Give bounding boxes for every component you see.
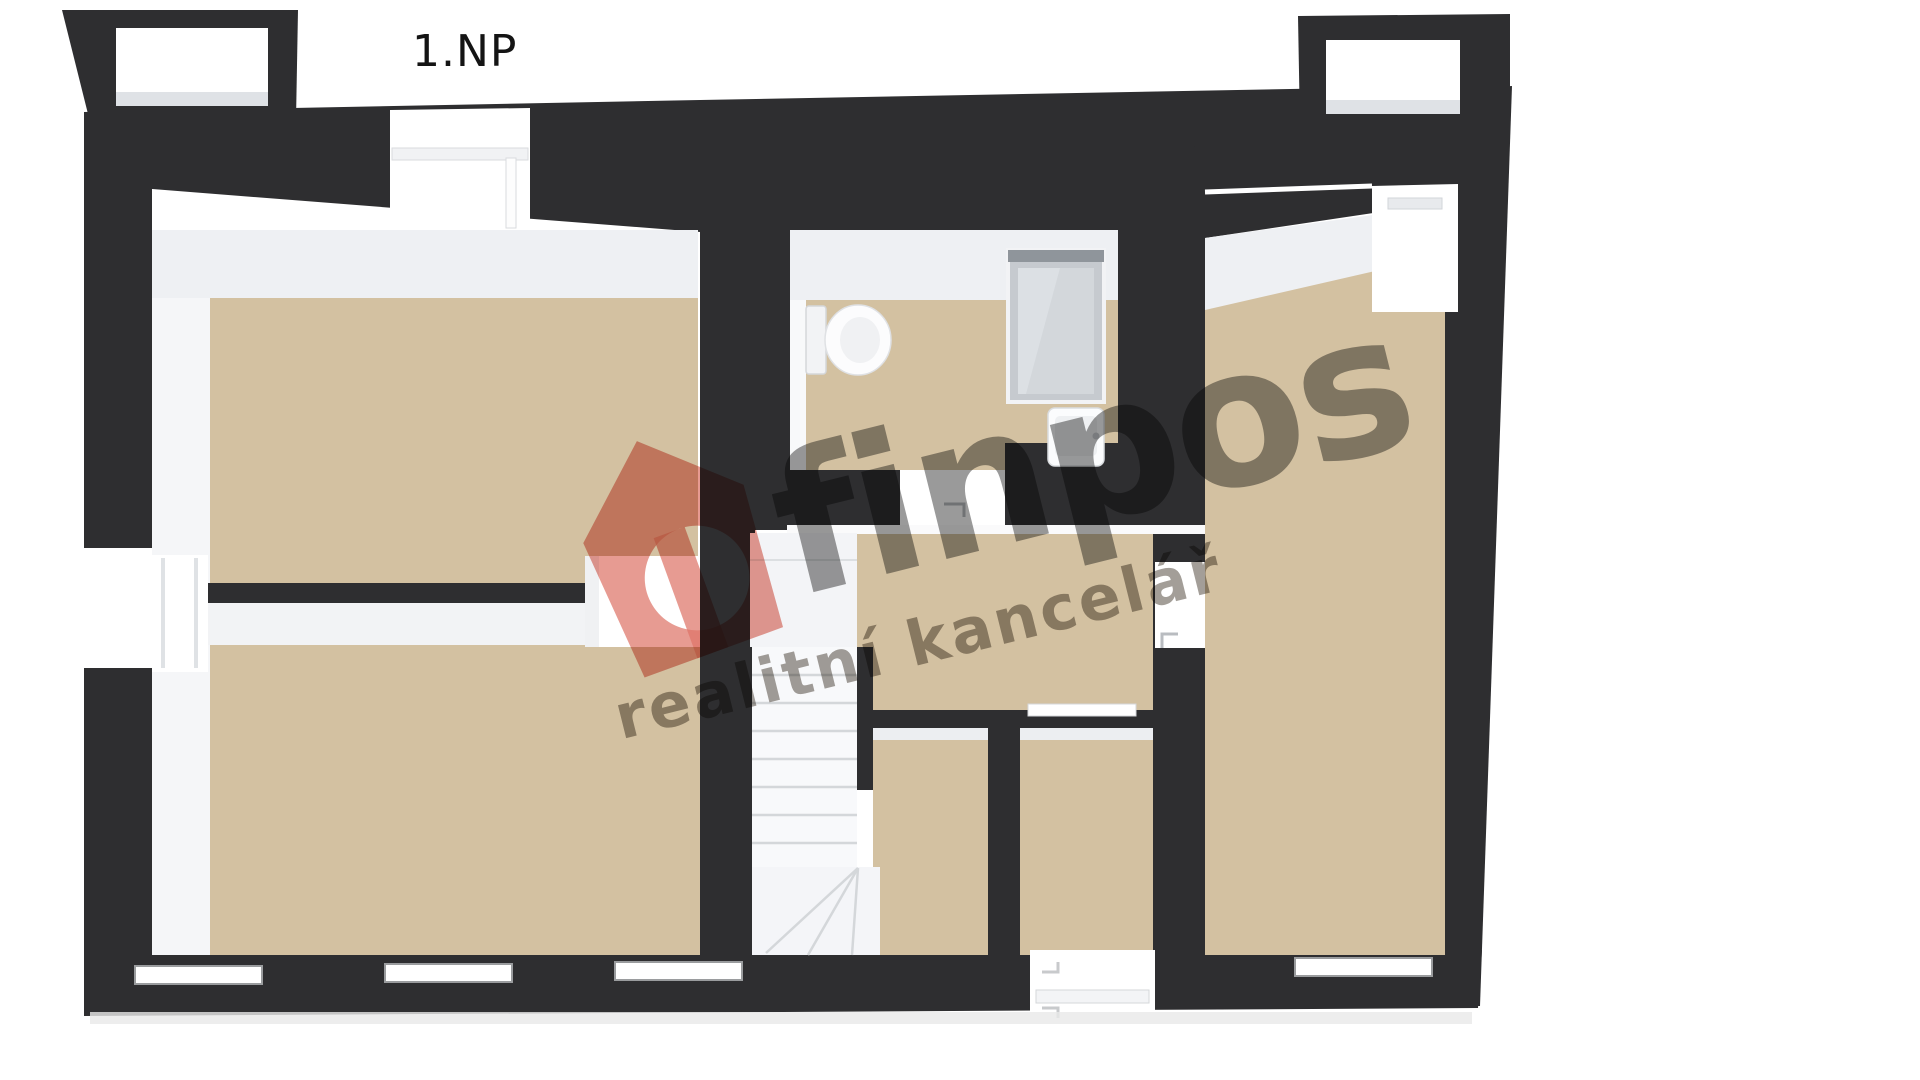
door-bathroom [900, 470, 1005, 532]
window-left-niche [152, 555, 208, 672]
room-floor-bottom-left [210, 645, 700, 955]
wall-stair-stub [857, 647, 873, 790]
window-top-living-frame [506, 158, 516, 228]
wall-vestibule-divider [988, 728, 1020, 955]
stair-flight [752, 647, 857, 867]
wall-cap-hall [787, 525, 1205, 534]
toilet [806, 305, 891, 375]
room-floor-vestibule-a [873, 728, 988, 955]
wall-bathroom-right [1118, 146, 1205, 445]
floorplan-3d-render [0, 0, 1920, 1080]
washbasin [1048, 408, 1104, 466]
window-slit [615, 962, 742, 980]
face-bottomroom-left [152, 645, 210, 955]
window-slit [135, 966, 262, 984]
face-living-top [152, 230, 698, 298]
wall-bathroom-left [700, 102, 790, 530]
door-living-jamb [585, 556, 599, 647]
face-bath-left [790, 300, 806, 470]
wall-bath-south-right [1005, 443, 1205, 530]
door-living-bottom [585, 556, 700, 647]
wall-bath-south-stub [787, 470, 900, 530]
window-slit [1295, 958, 1432, 976]
face-vestibule-b [1020, 728, 1153, 740]
wall-stairwell-left [700, 530, 755, 1012]
wall-bottom [84, 950, 1482, 1016]
face-vestibule-a [873, 728, 988, 740]
screenshot-root: finpos realitní kancelář 1.NP [0, 0, 1920, 1080]
chimney-left-niche-shadow [116, 92, 268, 106]
floor-title: 1.NP [412, 26, 517, 77]
room-floor-living [210, 298, 698, 583]
entrance-threshold [1036, 990, 1149, 1003]
stair-upper-landing [750, 533, 857, 647]
room-floor-right [1205, 255, 1445, 955]
window-left-outer [84, 548, 152, 668]
room-floor-vestibule-b [1020, 728, 1153, 955]
face-living-left [152, 298, 210, 583]
shower [1008, 250, 1104, 402]
window-slit [385, 964, 512, 982]
radiator-right-room [1388, 198, 1442, 209]
door-vestibule-sill [1028, 704, 1136, 716]
face-bottomroom-north [152, 603, 585, 645]
chimney-right-niche-shadow [1326, 100, 1460, 114]
ground-shadow [90, 1012, 1472, 1024]
